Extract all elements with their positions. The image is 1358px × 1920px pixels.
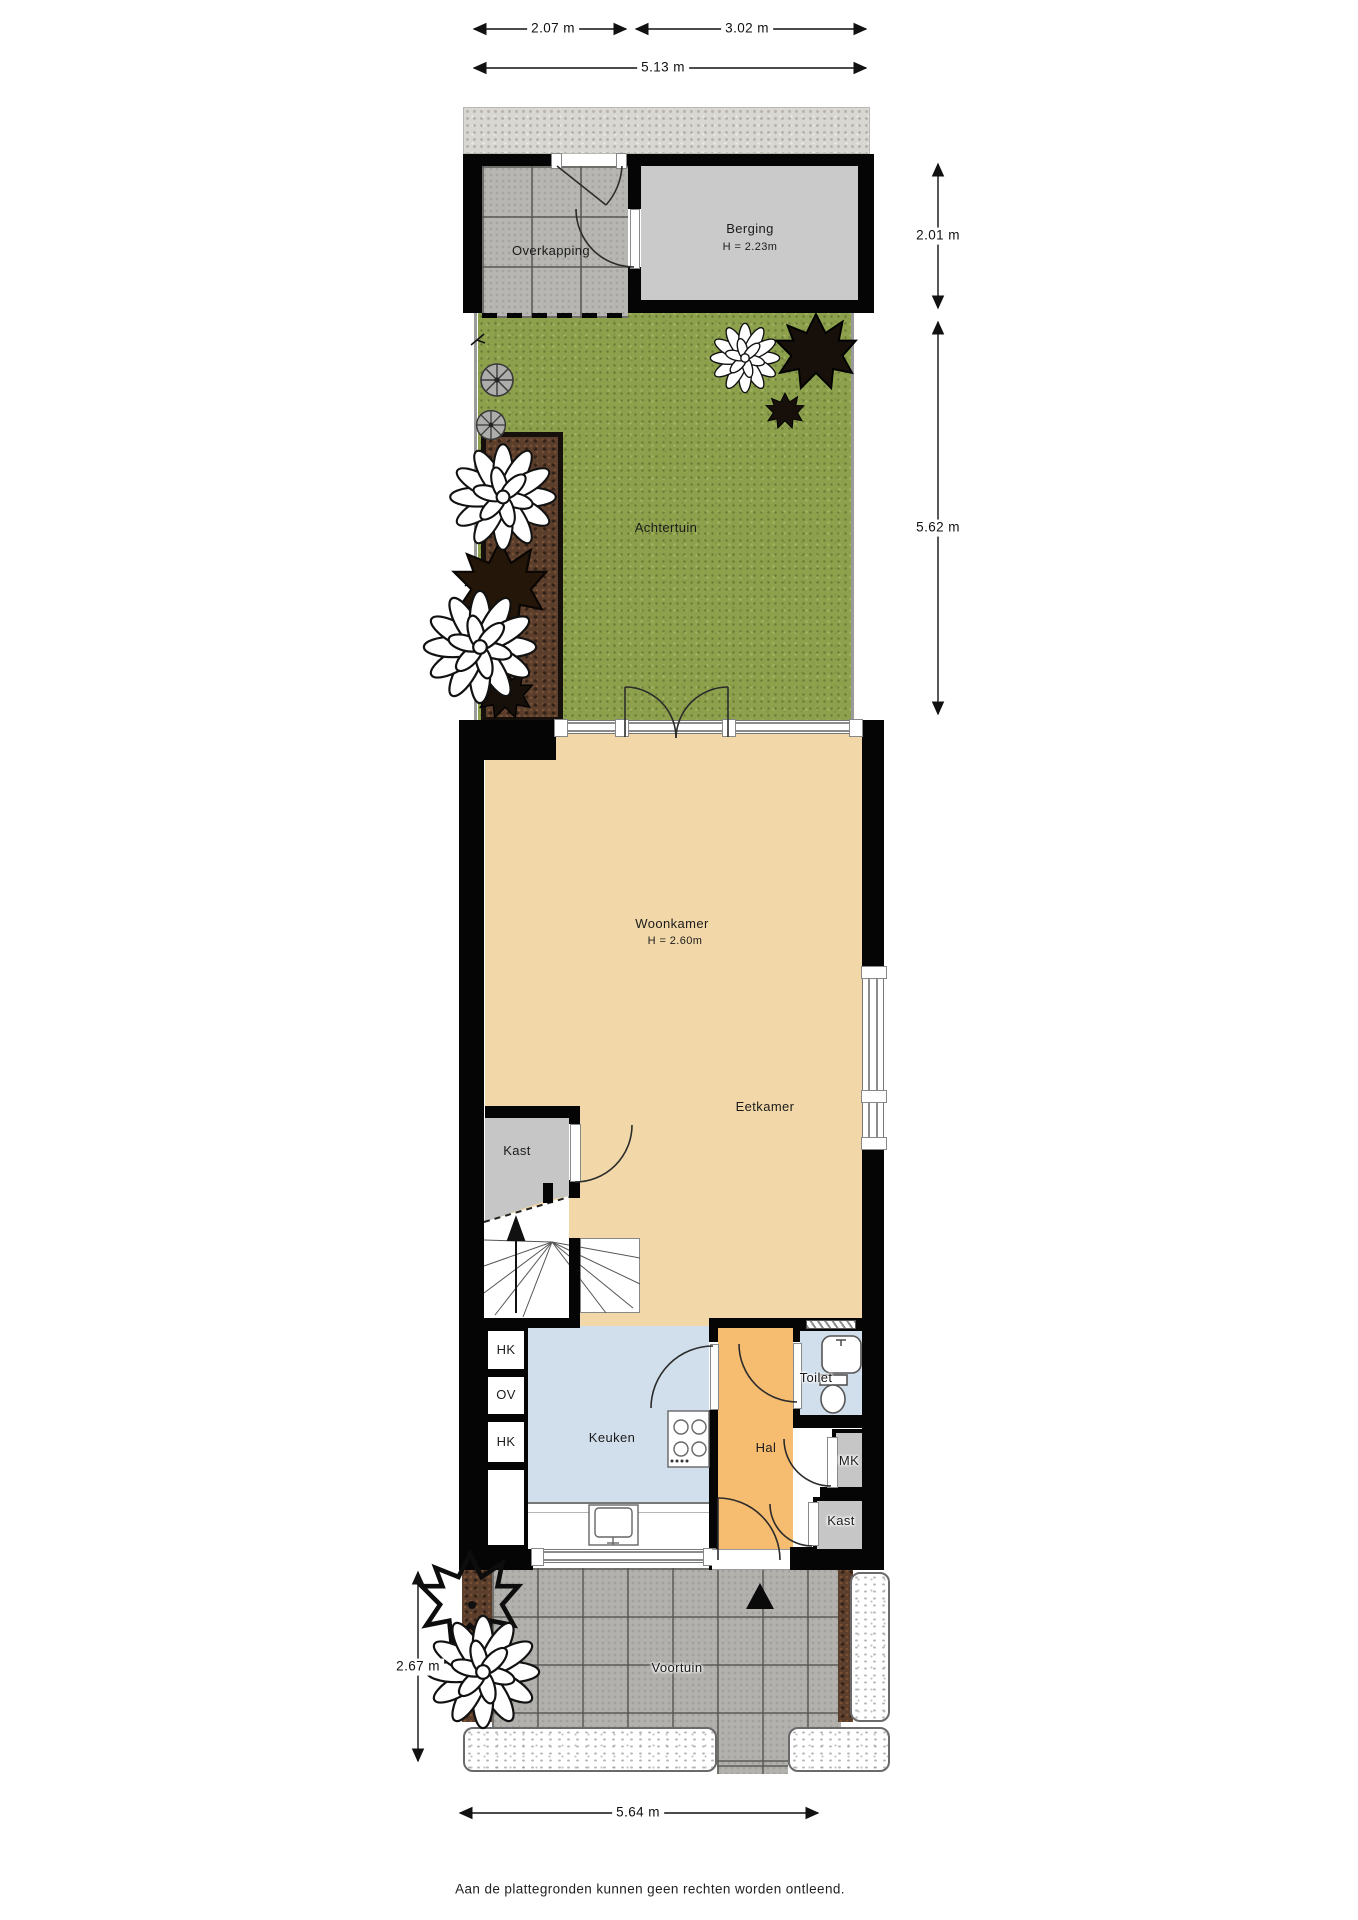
overkapping-open-side — [482, 313, 628, 318]
label-ov: OV — [496, 1387, 516, 1403]
wall-closet-right-upper — [569, 1106, 580, 1124]
wall-closet-right-lower — [569, 1180, 580, 1198]
overkapping-back-door-gap — [553, 154, 623, 166]
wall-hall-top — [709, 1318, 800, 1328]
hedge-right — [850, 1572, 890, 1722]
box-utility-blank — [484, 1466, 528, 1549]
kitchen-door-panel — [710, 1344, 719, 1410]
label-hk-top: HK — [497, 1342, 516, 1358]
alley-surface — [463, 107, 870, 154]
hedge-bottom-right — [788, 1727, 890, 1772]
doorpost — [551, 153, 562, 169]
window-post — [722, 719, 736, 737]
front-door-threshold — [712, 1549, 790, 1570]
front-path — [717, 1765, 788, 1774]
flower-bed — [481, 432, 563, 722]
mk-door-panel — [827, 1437, 838, 1488]
dim-top-left: 2.07 m — [527, 21, 579, 38]
floorplan-canvas: 2.07 m 3.02 m 5.13 m 2.01 m 5.62 m 2.67 … — [0, 0, 1358, 1920]
kitchen-counter-edge — [528, 1512, 709, 1513]
label-eetkamer: Eetkamer — [736, 1099, 795, 1115]
dim-front-left: 2.67 m — [392, 1659, 444, 1676]
label-woonkamer: Woonkamer — [635, 916, 708, 932]
label-kast-upper: Kast — [503, 1143, 531, 1159]
label-achtertuin: Achtertuin — [635, 520, 698, 536]
wall-house-bottom-left — [459, 1547, 533, 1570]
dim-right-lower: 5.62 m — [912, 520, 964, 537]
wall-kitchen-hall-lower — [709, 1410, 718, 1570]
label-overkapping: Overkapping — [512, 243, 590, 259]
garden-fence-right — [851, 313, 854, 720]
wall-closet-top — [485, 1106, 580, 1118]
berging-door-panel — [630, 209, 640, 269]
kitchen-counter — [528, 1502, 709, 1549]
wall-house-left — [459, 720, 484, 1570]
hedge-bottom-left — [463, 1727, 717, 1772]
wall-toilet-left-upper — [793, 1328, 800, 1342]
toilet-vent-window — [806, 1320, 856, 1329]
rear-window-band — [556, 720, 862, 734]
label-berging-height: H = 2.23m — [723, 241, 778, 255]
dim-top-right: 3.02 m — [721, 21, 773, 38]
label-hk-bottom: HK — [497, 1434, 516, 1450]
window-post — [861, 966, 887, 979]
window-post — [861, 1090, 887, 1103]
label-keuken: Keuken — [589, 1430, 636, 1446]
label-toilet: Toilet — [800, 1370, 833, 1386]
front-window-band — [533, 1549, 712, 1563]
garden-fence-left — [474, 313, 477, 720]
wall-closet-notch — [543, 1183, 553, 1203]
disclaimer-text: Aan de plattegronden kunnen geen rechten… — [455, 1882, 845, 1899]
window-post — [531, 1548, 544, 1566]
label-mk: MK — [839, 1453, 859, 1469]
stairs-lower-steps — [580, 1238, 640, 1313]
wall-top-right-seg — [623, 154, 874, 166]
wall-berging-bottom — [628, 300, 874, 313]
window-post — [849, 719, 863, 737]
label-voortuin: Voortuin — [652, 1660, 703, 1676]
label-hal: Hal — [756, 1440, 777, 1456]
wall-stairs-right — [569, 1238, 580, 1320]
wall-berging-right — [858, 154, 874, 313]
window-post — [615, 719, 629, 737]
kast-door-panel — [808, 1502, 819, 1546]
wall-overkapping-left — [463, 154, 482, 313]
doorpost — [616, 153, 627, 169]
closet-door-panel — [570, 1124, 581, 1182]
dim-top-total: 5.13 m — [637, 60, 689, 77]
front-soil-left — [462, 1568, 492, 1722]
label-woonkamer-height: H = 2.60m — [648, 935, 703, 949]
wall-partition-upper — [628, 166, 641, 209]
wall-kitchen-hall-upper — [709, 1328, 718, 1342]
dim-right-upper: 2.01 m — [912, 228, 964, 245]
wall-toilet-bottom — [793, 1415, 862, 1428]
window-post — [554, 719, 568, 737]
side-window — [862, 968, 884, 1148]
window-post — [861, 1137, 887, 1150]
label-kast-lower: Kast — [827, 1513, 855, 1529]
label-berging: Berging — [726, 221, 774, 237]
dim-bottom-total: 5.64 m — [612, 1805, 664, 1822]
wall-house-right-upper — [862, 720, 884, 968]
